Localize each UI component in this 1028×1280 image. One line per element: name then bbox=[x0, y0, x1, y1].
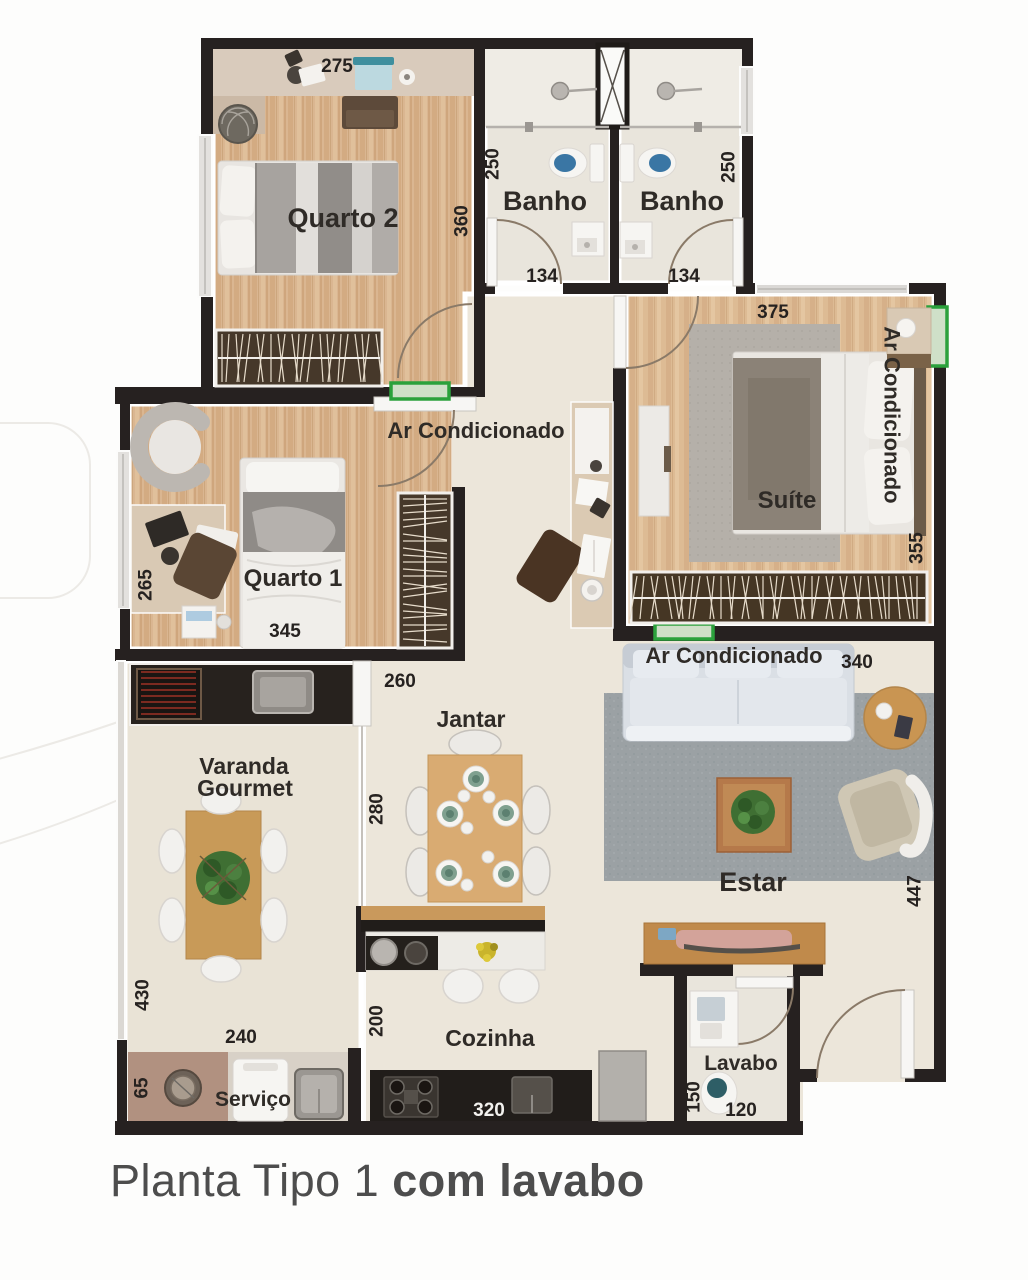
svg-text:447: 447 bbox=[905, 875, 926, 907]
svg-text:340: 340 bbox=[841, 652, 873, 673]
svg-text:Lavabo: Lavabo bbox=[704, 1052, 778, 1075]
svg-text:Jantar: Jantar bbox=[436, 706, 505, 732]
svg-text:430: 430 bbox=[133, 979, 154, 1011]
svg-text:120: 120 bbox=[725, 1100, 757, 1121]
svg-text:Ar Condicionado: Ar Condicionado bbox=[387, 418, 564, 443]
svg-text:240: 240 bbox=[225, 1027, 257, 1048]
svg-text:Estar: Estar bbox=[719, 867, 787, 897]
svg-text:134: 134 bbox=[526, 266, 558, 287]
svg-text:150: 150 bbox=[684, 1081, 705, 1113]
svg-text:Ar Condicionado: Ar Condicionado bbox=[880, 326, 905, 503]
svg-text:265: 265 bbox=[136, 569, 157, 601]
svg-text:65: 65 bbox=[132, 1077, 153, 1099]
svg-text:Serviço: Serviço bbox=[215, 1088, 291, 1111]
svg-text:375: 375 bbox=[757, 302, 789, 323]
svg-text:360: 360 bbox=[452, 205, 473, 237]
svg-text:Quarto 2: Quarto 2 bbox=[287, 203, 398, 233]
svg-text:Gourmet: Gourmet bbox=[197, 775, 293, 801]
svg-text:355: 355 bbox=[907, 532, 928, 564]
svg-text:345: 345 bbox=[269, 621, 301, 642]
svg-text:Planta Tipo 1 com lavabo: Planta Tipo 1 com lavabo bbox=[110, 1155, 645, 1206]
svg-text:280: 280 bbox=[367, 793, 388, 825]
svg-text:275: 275 bbox=[321, 56, 353, 77]
svg-text:134: 134 bbox=[668, 266, 700, 287]
svg-text:250: 250 bbox=[483, 148, 504, 180]
svg-text:250: 250 bbox=[719, 151, 740, 183]
svg-text:320: 320 bbox=[473, 1100, 505, 1121]
svg-text:Suíte: Suíte bbox=[758, 487, 817, 514]
svg-text:Quarto 1: Quarto 1 bbox=[244, 565, 343, 592]
svg-text:Banho: Banho bbox=[503, 186, 587, 216]
svg-text:Cozinha: Cozinha bbox=[445, 1025, 535, 1051]
svg-text:Ar Condicionado: Ar Condicionado bbox=[645, 643, 822, 668]
svg-text:260: 260 bbox=[384, 671, 416, 692]
svg-text:Banho: Banho bbox=[640, 186, 724, 216]
svg-text:200: 200 bbox=[367, 1005, 388, 1037]
